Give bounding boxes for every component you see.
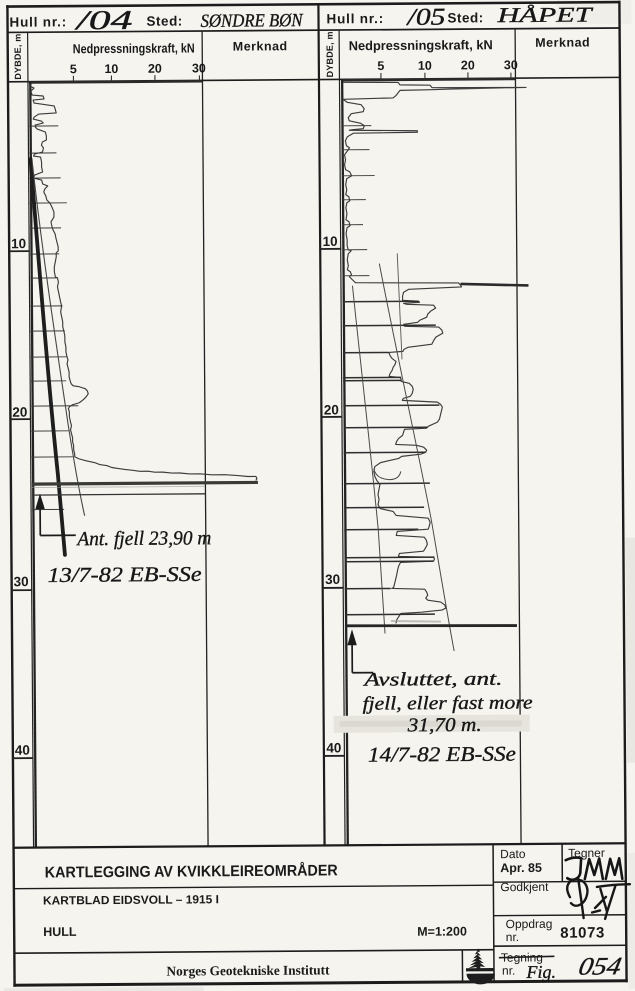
svg-text:Fig.: Fig. — [525, 962, 556, 982]
svg-text:Merknad: Merknad — [233, 39, 288, 53]
svg-text:KARTLEGGING AV KVIKKLEIREOMRÅD: KARTLEGGING AV KVIKKLEIREOMRÅDER — [45, 862, 338, 881]
svg-text:Merknad: Merknad — [535, 35, 590, 49]
svg-text:40: 40 — [326, 740, 341, 755]
svg-text:81073: 81073 — [560, 924, 605, 941]
svg-text:Dato: Dato — [500, 847, 526, 861]
svg-text:30: 30 — [192, 61, 206, 75]
svg-text:nr.: nr. — [506, 930, 519, 944]
svg-text:Nedpressningskraft, kN: Nedpressningskraft, kN — [349, 37, 493, 53]
svg-text:30: 30 — [325, 572, 340, 587]
svg-text:31,70 m.: 31,70 m. — [407, 715, 482, 737]
svg-text:fjell, eller fast more: fjell, eller fast more — [362, 692, 532, 714]
svg-text:DYBDE, m: DYBDE, m — [325, 31, 335, 77]
svg-text:HULL: HULL — [43, 925, 77, 939]
svg-text:20: 20 — [12, 405, 27, 420]
svg-text:M=1:200: M=1:200 — [417, 924, 467, 938]
svg-text:Apr. 85: Apr. 85 — [500, 861, 542, 875]
svg-text:5: 5 — [70, 62, 77, 76]
svg-text:Nedpressningskraft, kN: Nedpressningskraft, kN — [73, 40, 195, 56]
svg-text:Oppdrag: Oppdrag — [506, 917, 553, 931]
svg-text:20: 20 — [324, 402, 339, 417]
svg-text:5: 5 — [377, 59, 384, 73]
svg-text:30: 30 — [504, 58, 518, 72]
svg-text:30: 30 — [14, 574, 29, 589]
svg-text:Godkjent: Godkjent — [500, 880, 549, 894]
svg-text:20: 20 — [461, 58, 475, 72]
svg-text:40: 40 — [15, 743, 30, 758]
svg-text:10: 10 — [11, 236, 26, 251]
svg-text:DYBDE, m: DYBDE, m — [13, 34, 23, 80]
svg-text:054: 054 — [576, 953, 624, 981]
svg-text:/05: /05 — [405, 5, 446, 31]
svg-text:Sted:: Sted: — [447, 10, 483, 25]
svg-text:10: 10 — [104, 62, 118, 76]
svg-text:Sted:: Sted: — [146, 13, 182, 28]
svg-text:SØNDRE BØN: SØNDRE BØN — [200, 11, 304, 32]
svg-text:10: 10 — [323, 234, 338, 249]
svg-text:KARTBLAD EIDSVOLL – 1915 I: KARTBLAD EIDSVOLL – 1915 I — [43, 892, 219, 907]
svg-text:10: 10 — [418, 59, 432, 73]
svg-text:nr.: nr. — [502, 964, 515, 978]
svg-text:Avsluttet, ant.: Avsluttet, ant. — [362, 669, 503, 691]
svg-text:Norges Geotekniske Institutt: Norges Geotekniske Institutt — [166, 962, 330, 978]
svg-text:14/7-82 EB-SSe: 14/7-82 EB-SSe — [368, 742, 516, 767]
svg-text:HÅPET: HÅPET — [496, 2, 594, 27]
svg-text:/04: /04 — [73, 5, 132, 35]
svg-text:13/7-82 EB-SSe: 13/7-82 EB-SSe — [47, 562, 201, 587]
svg-text:Hull nr.:: Hull nr.: — [9, 14, 67, 29]
svg-text:Ant. fjell 23,90 m: Ant. fjell 23,90 m — [75, 527, 211, 550]
svg-text:Hull nr.:: Hull nr.: — [326, 11, 384, 26]
svg-text:20: 20 — [148, 62, 162, 76]
